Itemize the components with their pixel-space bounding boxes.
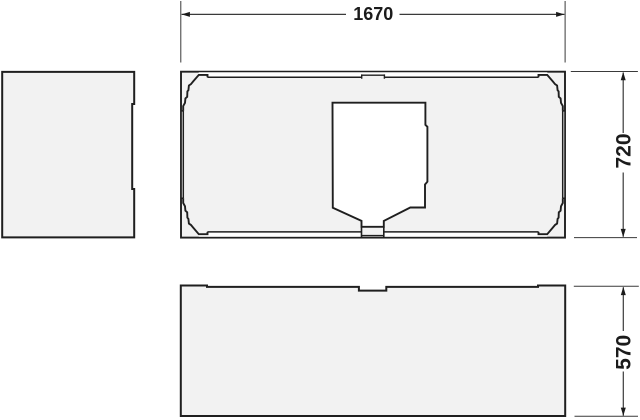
svg-text:570: 570 [612,335,635,370]
svg-text:720: 720 [612,133,635,168]
svg-text:1670: 1670 [353,4,393,24]
